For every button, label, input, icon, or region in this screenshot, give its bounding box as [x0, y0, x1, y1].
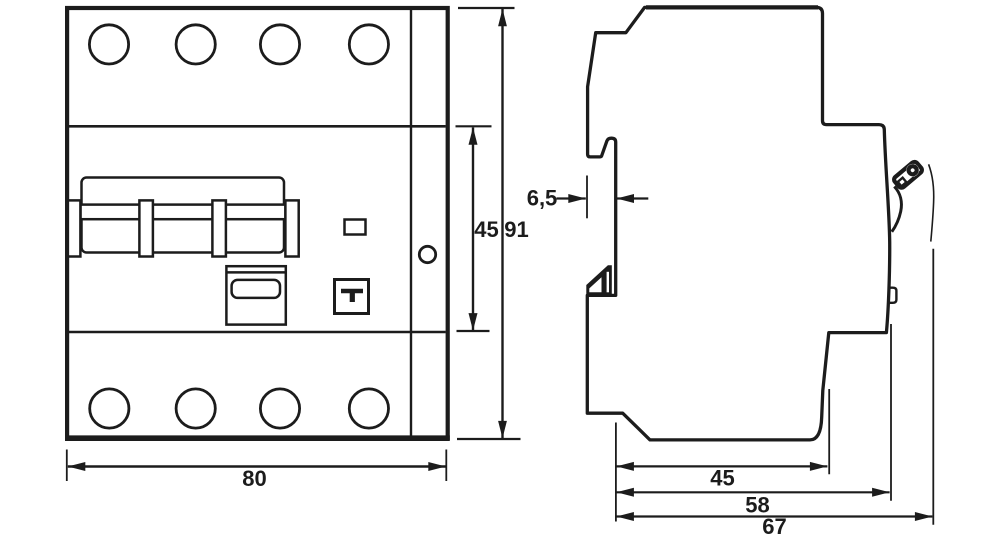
svg-text:45: 45	[710, 466, 734, 491]
svg-text:45: 45	[474, 217, 498, 242]
svg-text:6,5: 6,5	[527, 186, 558, 211]
svg-text:80: 80	[242, 466, 266, 491]
svg-text:91: 91	[504, 217, 528, 242]
svg-text:67: 67	[762, 514, 786, 539]
